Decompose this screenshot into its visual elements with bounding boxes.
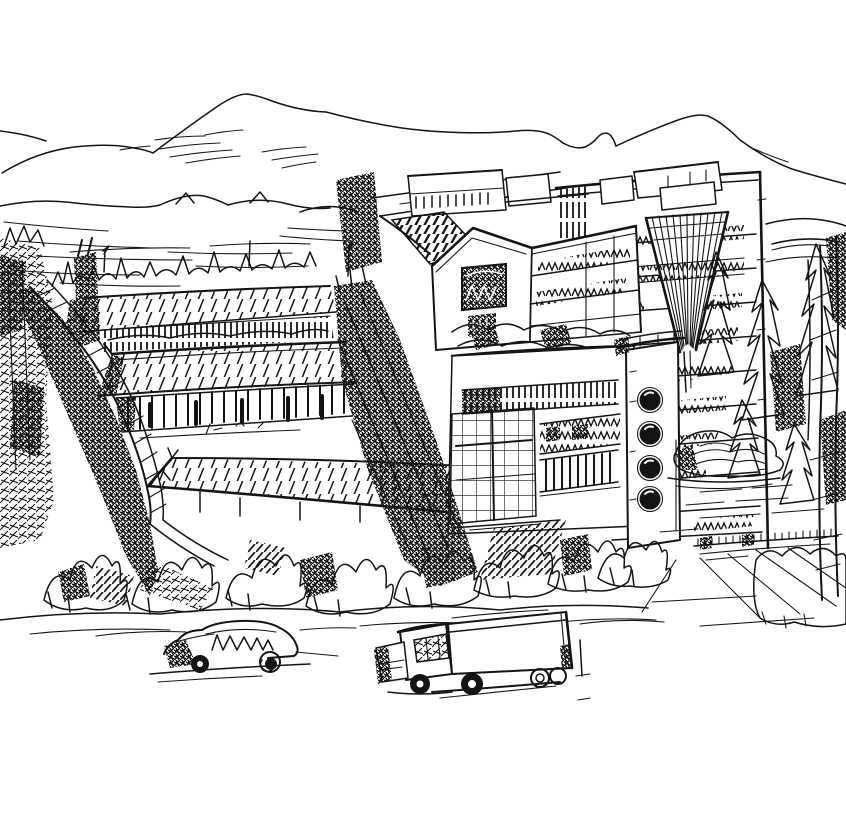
sketch-canvas [0,0,846,813]
porthole-window [638,456,663,481]
porthole-window [638,388,663,413]
porthole-window [638,487,663,512]
ink-sketch [0,0,846,813]
porthole-window [638,422,663,447]
